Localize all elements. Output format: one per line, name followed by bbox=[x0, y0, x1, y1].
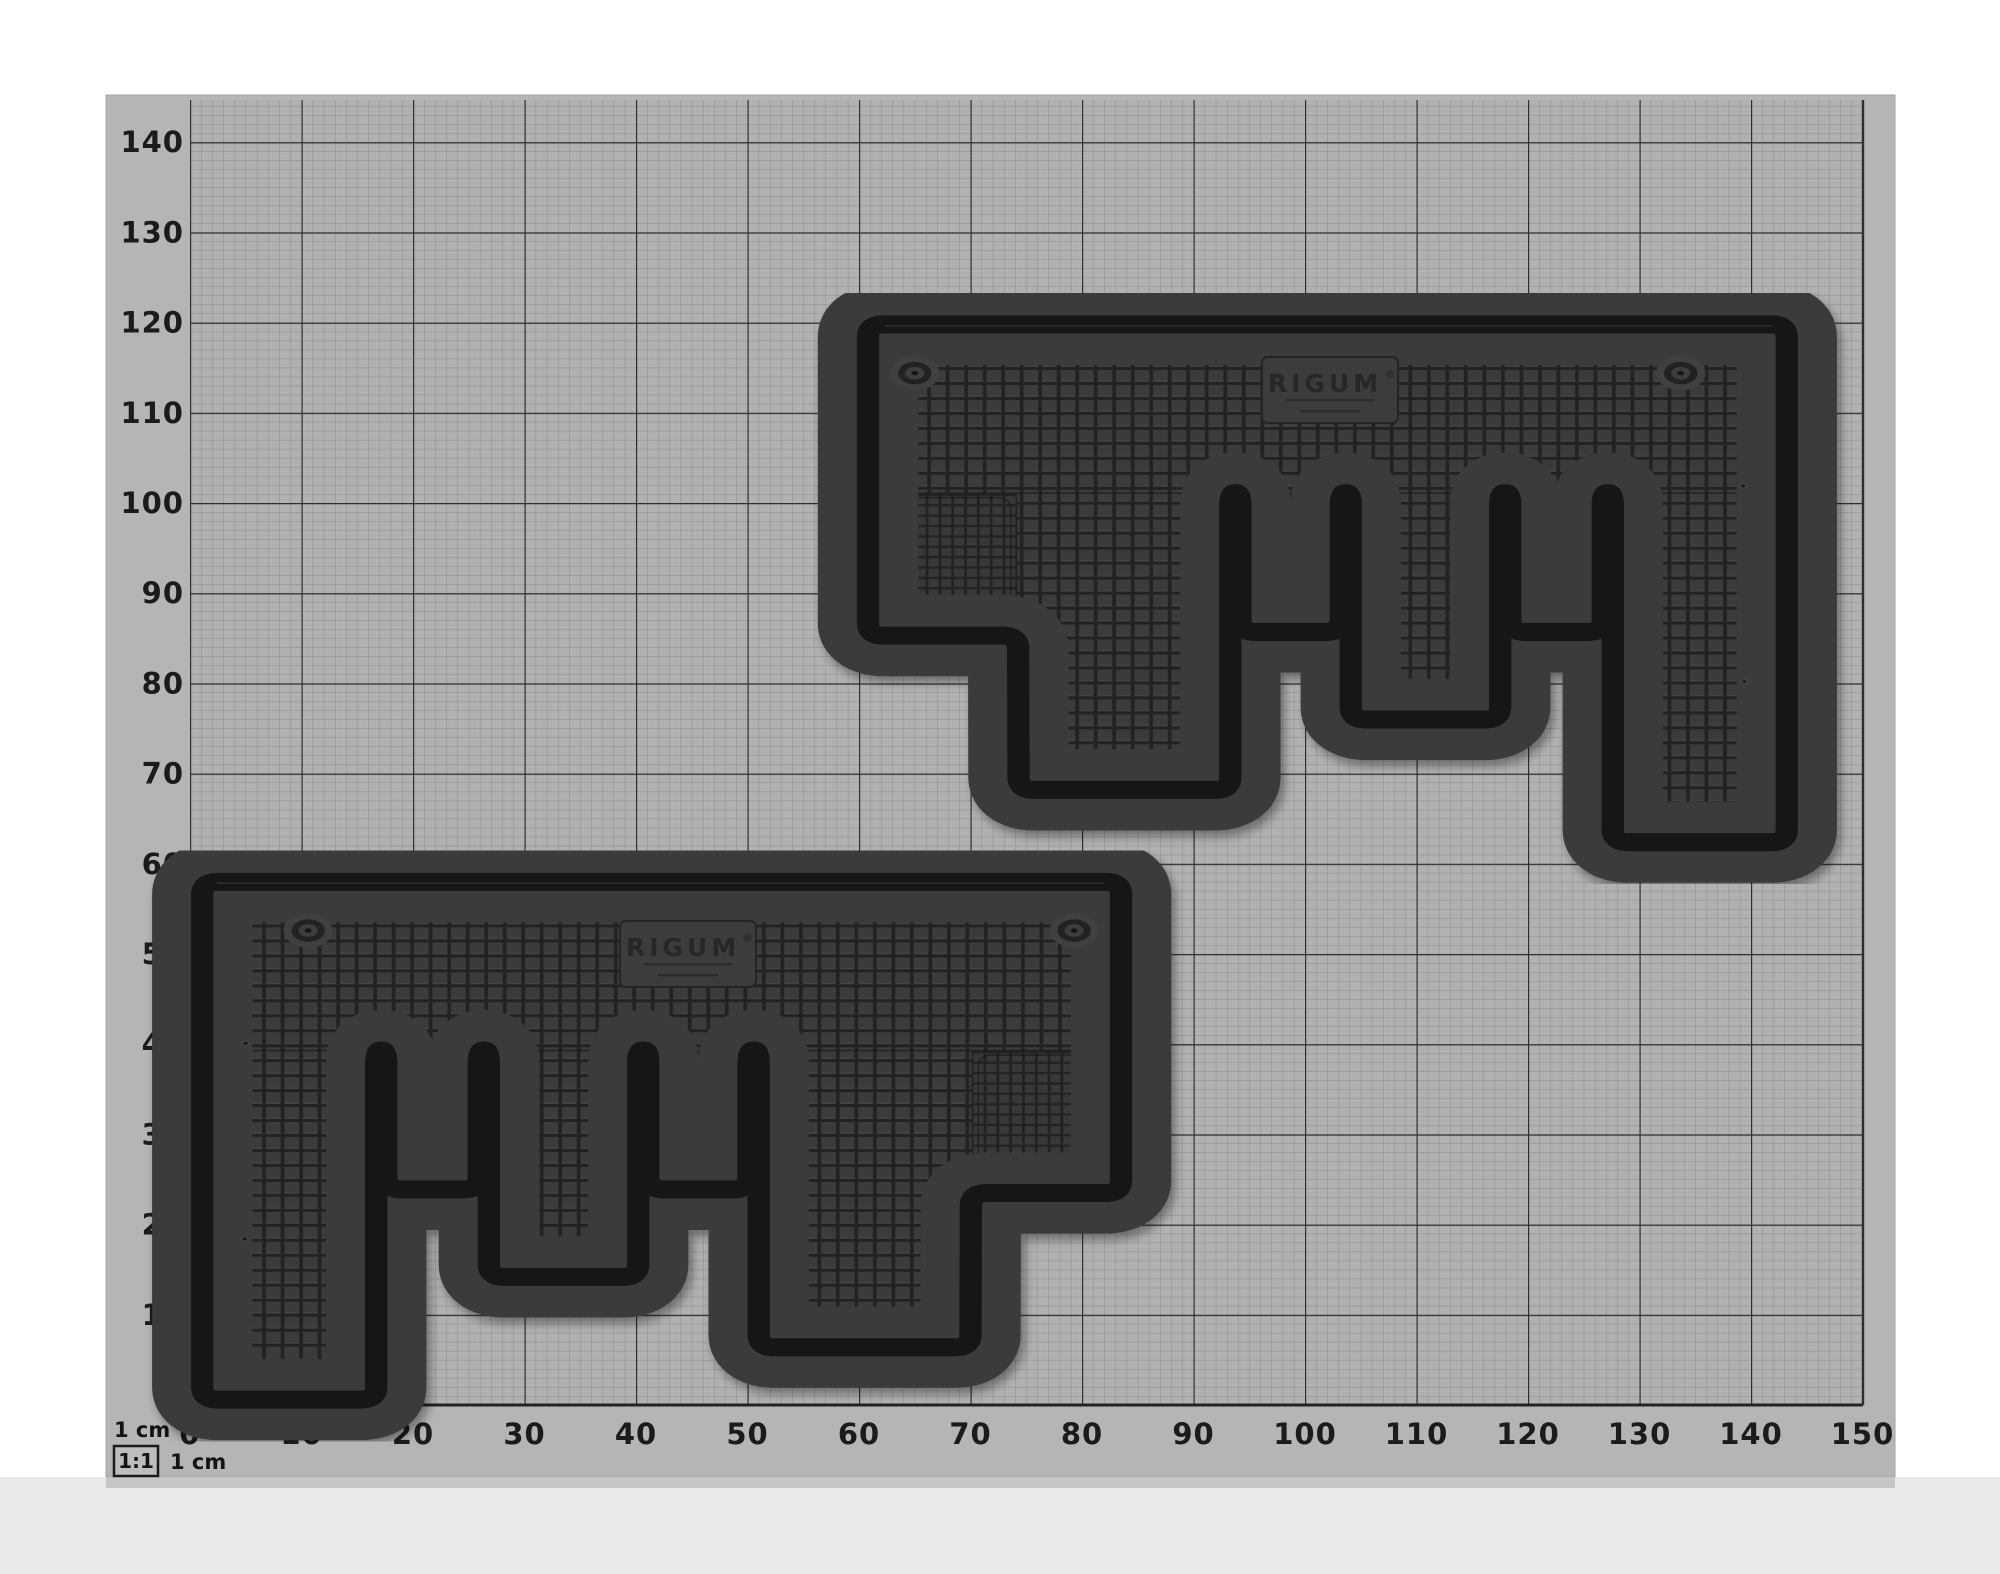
brand-fineprint-line bbox=[1286, 399, 1374, 402]
brand-registered-mark: ® bbox=[742, 932, 753, 945]
x-axis-tick-label: 50 bbox=[726, 1417, 768, 1451]
legend-bottom-label: 1 cm bbox=[170, 1450, 226, 1474]
y-axis-tick-label: 100 bbox=[120, 486, 184, 520]
y-axis-tick-label: 110 bbox=[120, 396, 184, 430]
backdrop-bottom-strip bbox=[0, 1477, 2000, 1574]
y-axis-tick-label: 80 bbox=[142, 666, 184, 700]
brand-fineprint-line bbox=[658, 974, 718, 977]
x-axis-tick-label: 70 bbox=[949, 1417, 991, 1451]
brand-plate-right-mat: RIGUM ® bbox=[1262, 357, 1398, 423]
y-axis-tick-label: 120 bbox=[120, 306, 184, 340]
x-axis-tick-label: 150 bbox=[1831, 1417, 1895, 1451]
x-axis-tick-label: 110 bbox=[1385, 1417, 1449, 1451]
x-axis-tick-label: 120 bbox=[1496, 1417, 1560, 1451]
photo-stage: 140130120110100908070605040302010 010203… bbox=[0, 0, 2000, 1574]
measurement-grid-photo: 140130120110100908070605040302010 010203… bbox=[0, 0, 2000, 1574]
y-axis-tick-label: 130 bbox=[120, 215, 184, 249]
y-axis-tick-label: 90 bbox=[142, 576, 184, 610]
x-axis-tick-label: 140 bbox=[1719, 1417, 1783, 1451]
legend-top-label: 1 cm bbox=[114, 1418, 170, 1442]
x-axis-tick-label: 40 bbox=[615, 1417, 657, 1451]
x-axis-tick-label: 90 bbox=[1172, 1417, 1214, 1451]
x-axis-tick-label: 30 bbox=[503, 1417, 545, 1451]
brand-logo-text: RIGUM bbox=[626, 933, 740, 962]
brand-logo-text: RIGUM bbox=[1268, 369, 1382, 398]
brand-registered-mark: ® bbox=[1384, 368, 1395, 381]
x-axis-tick-label: 60 bbox=[838, 1417, 880, 1451]
y-axis-tick-label: 70 bbox=[142, 757, 184, 791]
brand-fineprint-line bbox=[1300, 410, 1360, 413]
paper-edge-shadow bbox=[106, 1477, 1895, 1488]
scale-ratio-label: 1:1 bbox=[118, 1449, 154, 1473]
x-axis-tick-label: 80 bbox=[1061, 1417, 1103, 1451]
y-axis-tick-label: 140 bbox=[120, 125, 184, 159]
x-axis-tick-label: 100 bbox=[1273, 1417, 1337, 1451]
brand-plate-left-mat: RIGUM ® bbox=[620, 921, 756, 987]
x-axis-tick-label: 130 bbox=[1608, 1417, 1672, 1451]
brand-fineprint-line bbox=[644, 963, 732, 966]
